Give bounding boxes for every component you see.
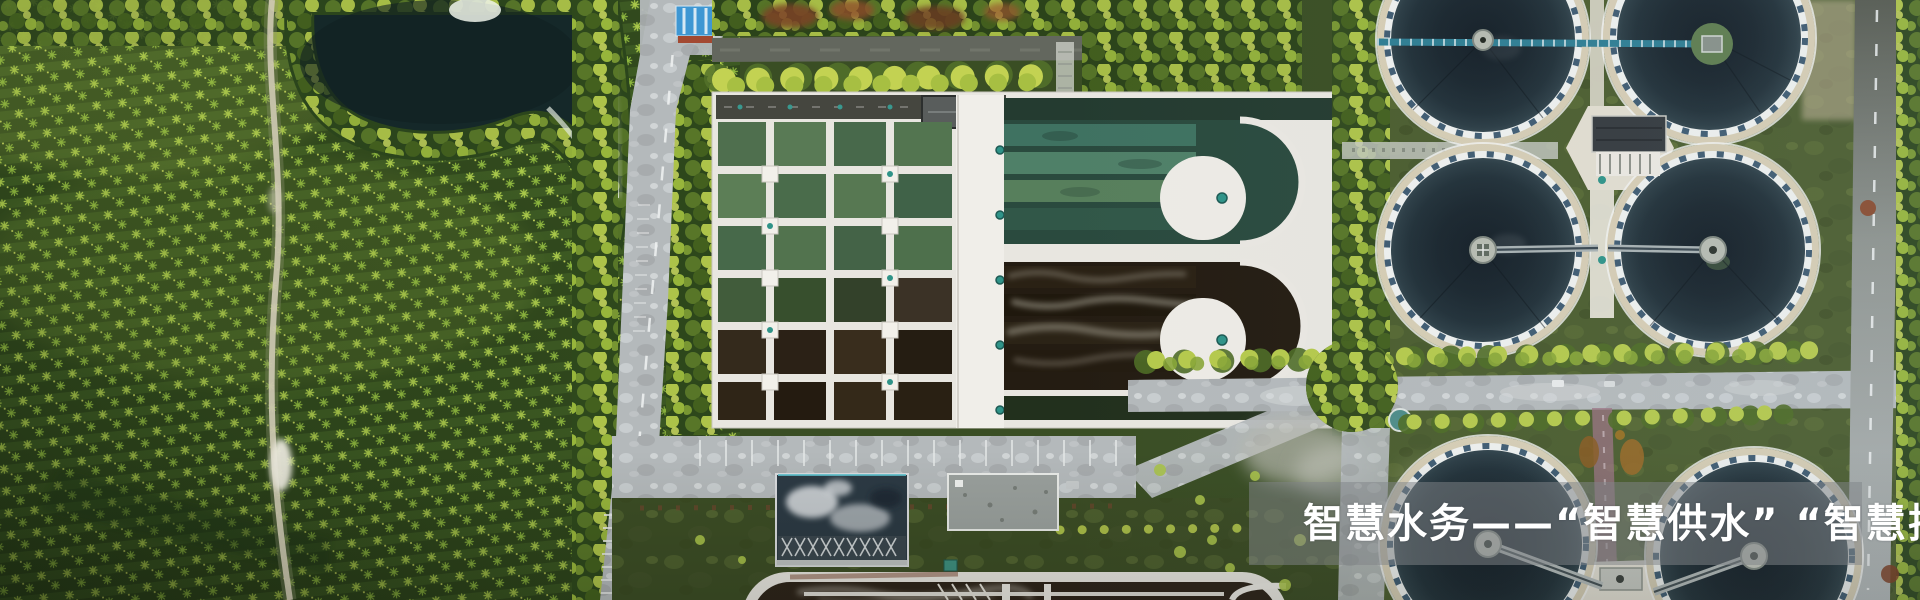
hero-caption: 智慧水务——“智慧供水” “智慧排水” [1303, 504, 1920, 544]
hero-banner: 智慧水务——“智慧供水” “智慧排水” [0, 0, 1920, 600]
caption-overlay: 智慧水务——“智慧供水” “智慧排水” [1249, 482, 1862, 565]
